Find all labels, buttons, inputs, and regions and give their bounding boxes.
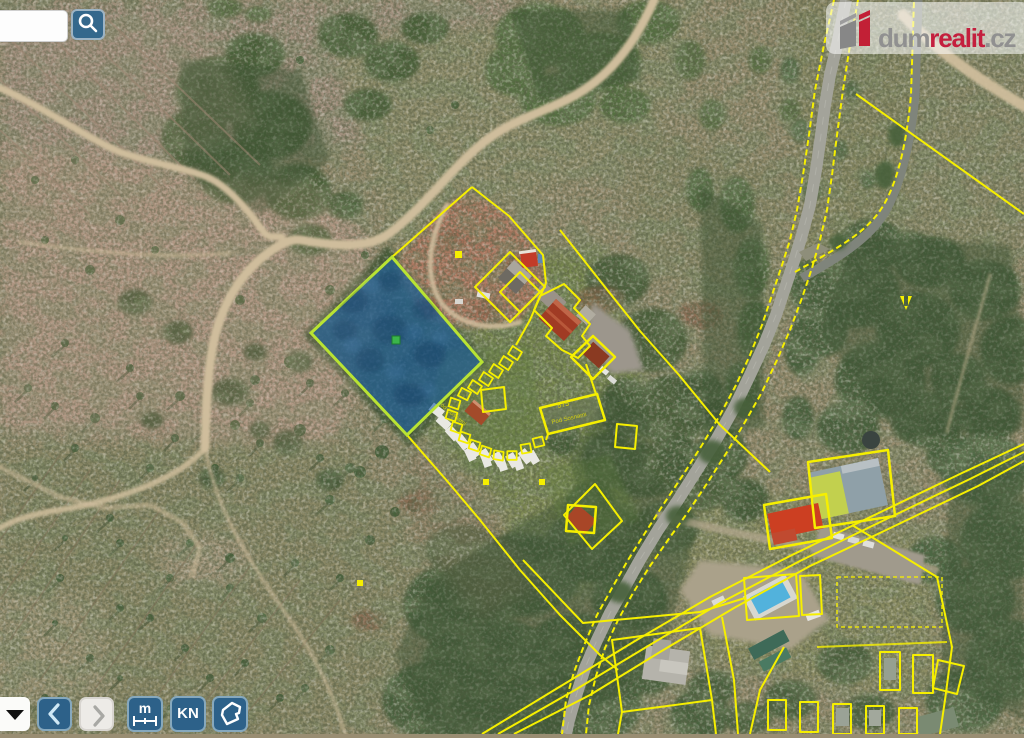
svg-text:m: m <box>139 700 151 716</box>
